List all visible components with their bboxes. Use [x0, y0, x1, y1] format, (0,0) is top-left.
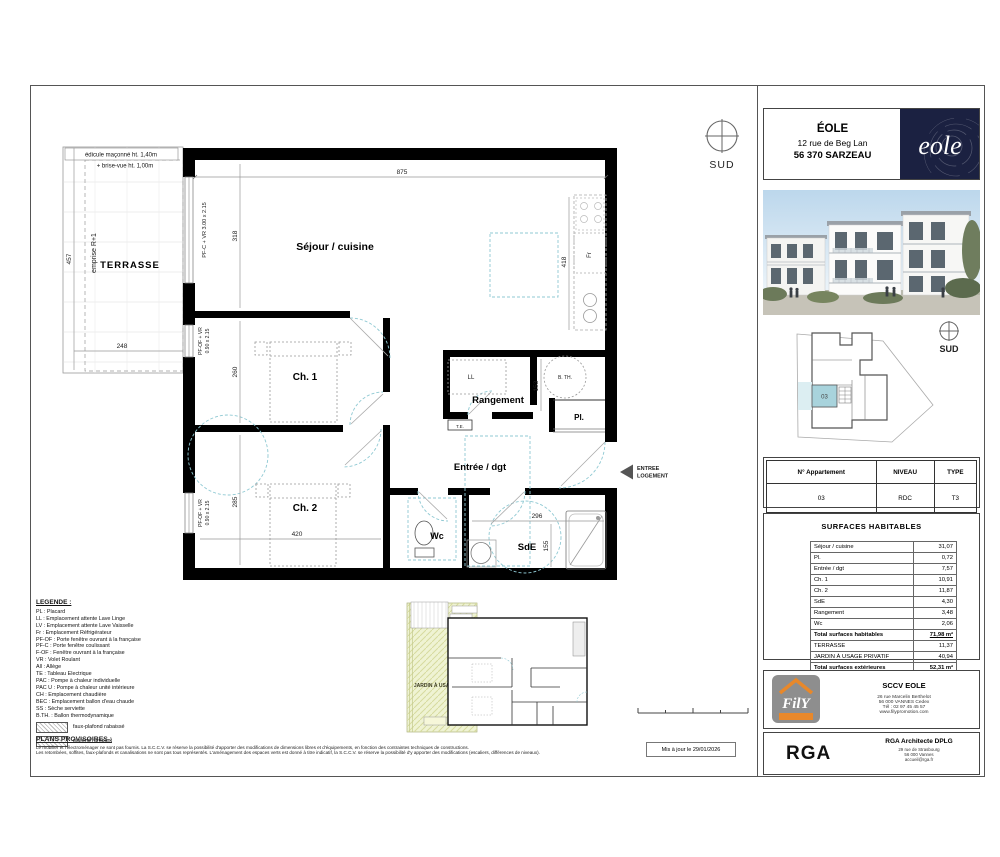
apt-level: RDC	[876, 484, 934, 513]
surface-row-value: 31,07	[914, 542, 957, 553]
apt-col-number: N° Appartement	[767, 461, 877, 484]
entrance-marker: ENTREE LOGEMENT	[620, 465, 669, 480]
legend-item: LV : Emplacement attente Lave Vaisselle	[36, 623, 226, 630]
surfaces-panel: SURFACES HABITABLES Séjour / cuisine31,0…	[763, 513, 980, 660]
interior-walls	[195, 311, 605, 568]
surfaces-total-hab-value: 71,98 m²	[914, 629, 957, 640]
compass-site-label: SUD	[939, 344, 959, 354]
emprise-label: emprise R+1	[91, 233, 98, 273]
dim-420: 420	[292, 531, 303, 538]
surface-row-label: Entrée / dgt	[811, 563, 914, 574]
dim-418: 418	[561, 256, 568, 267]
dim-296: 296	[532, 513, 543, 520]
legend: LEGENDE : PL : Placard LL : Emplacement …	[36, 600, 226, 747]
edicule-note: édicule maçonné ht. 1,40m	[85, 153, 157, 159]
room-rangement: Rangement	[472, 395, 525, 406]
surface-row-value: 0,72	[914, 552, 957, 563]
unit-03-label: 03	[821, 395, 828, 401]
boiler-label: B. TH.	[558, 375, 572, 381]
legend-item: LL : Emplacement attente Lave Linge	[36, 616, 226, 623]
site-plan: 03 SUD	[763, 318, 980, 452]
surface-row-label: Séjour / cuisine	[811, 542, 914, 553]
architect-block: RGA RGA Architecte DPLG 29 rue de Strasb…	[763, 732, 980, 775]
apt-number: 03	[767, 484, 877, 513]
dim-248: 248	[117, 343, 128, 350]
surface-row-value: 10,91	[914, 574, 957, 585]
unit-terrace-highlight	[798, 382, 812, 410]
terrace-area: édicule maçonné ht. 1,40m + brise-vue ht…	[63, 147, 183, 373]
entrance-label-2: LOGEMENT	[637, 474, 669, 480]
legend-item: F-OF : Fenêtre ouvrant à la française	[36, 650, 226, 657]
surface-row-value: 7,57	[914, 563, 957, 574]
legend-item: CH : Emplacement chaudière	[36, 692, 226, 699]
legend-item: VR : Volet Roulant	[36, 657, 226, 664]
hatch-swatch-faux-plafond	[36, 722, 68, 733]
eole-logo: eole	[900, 109, 979, 179]
room-sde: SdE	[518, 542, 536, 553]
compass-top	[705, 119, 739, 153]
brise-vue-note: + brise-vue ht. 1,00m	[97, 164, 154, 170]
fridge-label: Fr	[587, 252, 593, 258]
entrance-label-1: ENTREE	[637, 466, 660, 472]
compass-site	[939, 321, 959, 341]
terrasse-label: TERRASSE	[100, 260, 160, 271]
dim-155: 155	[543, 540, 550, 551]
plan-sheet-page: { "header": {"project": "ÉOLE", "address…	[0, 0, 1000, 857]
surface-row-label: Pl.	[811, 552, 914, 563]
dimension-lines	[74, 148, 608, 567]
title-block: ÉOLE 12 rue de Beg Lan 56 370 SARZEAU eo…	[763, 108, 980, 180]
legend-item: BEC : Emplacement ballon d'eau chaude	[36, 699, 226, 706]
dim-285: 285	[232, 496, 239, 507]
legend-item: All : Allège	[36, 664, 226, 671]
exterior-walls	[183, 148, 617, 580]
room-entree: Entrée / dgt	[454, 462, 507, 473]
provisional-title: PLANS PROVISOIRES :	[36, 737, 636, 743]
window-label-pfof2-l1: PF-OF + VR	[198, 499, 204, 527]
eole-logo-text: eole	[918, 131, 961, 160]
surface-row-label: Ch. 2	[811, 585, 914, 596]
updated-date-box: Mis à jour le 29/01/2026	[646, 742, 736, 757]
legend-item: TE : Tableau Electrique	[36, 671, 226, 678]
surfaces-title: SURFACES HABITABLES	[764, 522, 979, 531]
room-wc: Wc	[430, 531, 444, 541]
room-sejour: Séjour / cuisine	[296, 241, 374, 253]
surface-ext-label: JARDIN À USAGE PRIVATIF	[811, 651, 914, 662]
surface-row-label: Wc	[811, 618, 914, 629]
window-label-pfof1-l1: PF-OF + VR	[198, 327, 204, 355]
promoter-name: SCCV EOLE	[834, 681, 974, 690]
surface-row-value: 4,30	[914, 596, 957, 607]
apt-col-level: NIVEAU	[876, 461, 934, 484]
elec-panel-label: T.E.	[456, 424, 464, 429]
kitchen-fittings	[574, 195, 606, 330]
scale-bar	[638, 708, 748, 713]
promoter-block: FilY SCCV EOLE 26 rue Marcelin Berthelot…	[763, 670, 980, 729]
room-ch1: Ch. 1	[293, 372, 318, 383]
provisional-line2: Les retombées, soffites, faux-plafonds e…	[36, 750, 636, 756]
updated-date: Mis à jour le 29/01/2026	[662, 747, 721, 753]
surfaces-table: Séjour / cuisine31,07 Pl.0,72 Entrée / d…	[810, 541, 957, 674]
surface-row-value: 11,87	[914, 585, 957, 596]
surface-row-value: 3,48	[914, 607, 957, 618]
legend-item: PF-C : Porte fenêtre coulissant	[36, 643, 226, 650]
surface-row-label: SdE	[811, 596, 914, 607]
window-label-pfc: PF-C + VR 3.00 x 2.15	[202, 202, 208, 257]
legend-item: SS : Sèche serviette	[36, 706, 226, 713]
location-inset: JARDIN À USAGE PRIVATIF	[407, 602, 587, 732]
window-label-pfof2-l2: 0.90 x 2.15	[205, 500, 211, 525]
project-name: ÉOLE	[764, 123, 901, 135]
surface-row-value: 2,06	[914, 618, 957, 629]
column-divider	[757, 85, 758, 777]
legend-item: PF-OF : Porte fenêtre ouvrant à la franç…	[36, 637, 226, 644]
project-city: 56 370 SARZEAU	[764, 150, 901, 161]
legend-item: PAC U : Pompe à chaleur unité intérieure	[36, 685, 226, 692]
legend-item: Fr : Emplacement Réfrigérateur	[36, 630, 226, 637]
dim-260: 260	[232, 366, 239, 377]
fily-logo: FilY	[772, 675, 820, 725]
promoter-web: www.filypromotion.com	[834, 710, 974, 715]
project-address: 12 rue de Beg Lan	[764, 138, 901, 148]
legend-item: PAC : Pompe à chaleur individuelle	[36, 678, 226, 685]
surface-row-label: Rangement	[811, 607, 914, 618]
fily-logo-text: FilY	[781, 696, 811, 712]
architect-name: RGA Architecte DPLG	[864, 738, 974, 745]
compass-top-label: SUD	[709, 159, 734, 171]
dim-153: 153	[533, 380, 540, 391]
surface-row-label: Ch. 1	[811, 574, 914, 585]
surface-ext-value: 11,37	[914, 640, 957, 651]
surface-ext-value: 40,94	[914, 651, 957, 662]
architect-email: accueil@rga.fr	[864, 757, 974, 762]
provisional-plans-note: PLANS PROVISOIRES : Le mobilier et l'éle…	[36, 737, 636, 756]
washer-label: LL	[468, 375, 475, 381]
dim-875: 875	[397, 169, 408, 176]
building-photo	[763, 190, 980, 315]
window-label-pfof1-l2: 0.90 x 2.15	[205, 328, 211, 353]
apartment-info-table: N° Appartement NIVEAU TYPE 03 RDC T3	[763, 457, 980, 508]
room-pl: Pl.	[574, 413, 584, 422]
rga-logo: RGA	[786, 743, 831, 765]
legend-title: LEGENDE :	[36, 600, 226, 607]
apt-col-type: TYPE	[934, 461, 976, 484]
room-ch2: Ch. 2	[293, 503, 318, 514]
dim-318: 318	[232, 230, 239, 241]
legend-hatch1-label: faux-plafond rabaissé	[73, 724, 125, 731]
legend-item: PL : Placard	[36, 609, 226, 616]
surface-ext-label: TERRASSE	[811, 640, 914, 651]
apt-type: T3	[934, 484, 976, 513]
dim-457: 457	[66, 253, 73, 264]
legend-item: B.TH. : Ballon thermodynamique	[36, 713, 226, 720]
surfaces-total-hab-label: Total surfaces habitables	[811, 629, 914, 640]
